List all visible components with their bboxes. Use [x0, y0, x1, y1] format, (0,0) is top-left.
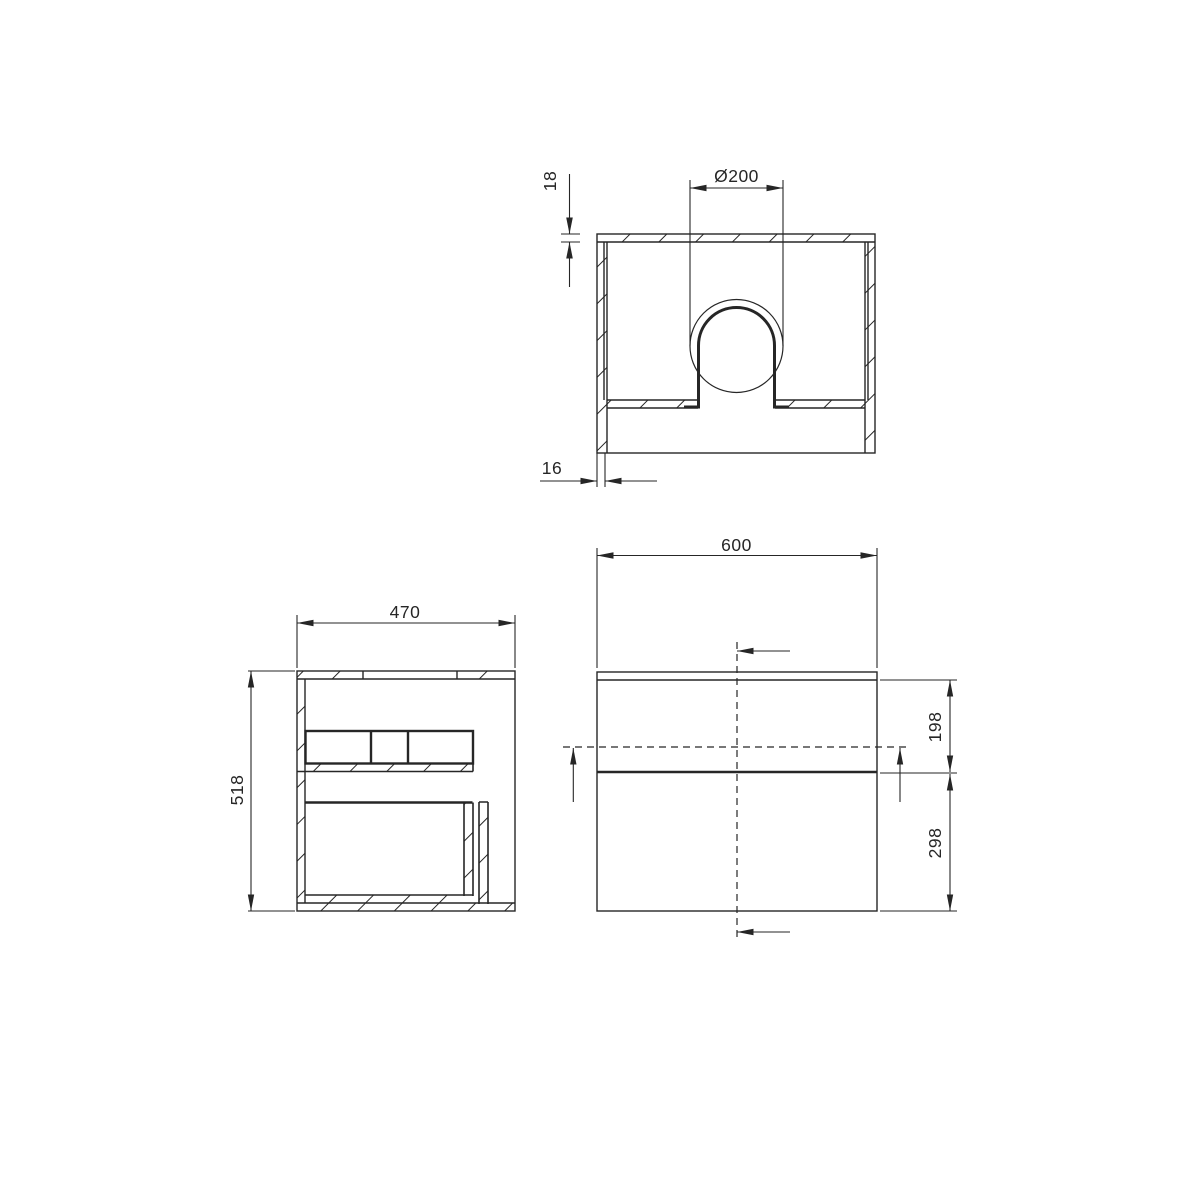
cabinet-technical-drawing-page: 18 Ø200 16 [0, 0, 1200, 1200]
top-view-left-wall-hatch [597, 242, 607, 453]
dim-518-extension-lines [248, 671, 295, 911]
dim-600-extension-lines [597, 548, 877, 668]
dim-upper-front-height: 198 [880, 680, 957, 773]
side-upper-drawer-box [306, 731, 474, 764]
dim-18-extension-lines [561, 234, 580, 242]
side-top-joints [363, 671, 457, 679]
arrowhead-right-icon [767, 185, 784, 191]
arrowhead-right-icon [581, 478, 598, 484]
arrowhead-up-icon [566, 242, 573, 259]
dim-lower-front-height-label: 298 [925, 828, 945, 859]
arrowhead-up-icon [947, 680, 953, 697]
arrowhead-right-icon [499, 620, 516, 626]
dim-16-extension-lines [597, 453, 605, 487]
arrowhead-left-icon [605, 478, 622, 484]
dim-width-label: 600 [721, 535, 752, 555]
side-shelf-hatch [305, 764, 473, 772]
arrowhead-up-icon [570, 748, 576, 765]
arrowhead-right-icon [861, 552, 878, 558]
side-view: 470 518 [227, 602, 515, 911]
front-view: 600 198 298 [563, 535, 957, 938]
dim-o200-extension-lines [690, 180, 783, 346]
side-drawer-bottom-hatch [305, 895, 473, 903]
side-drawer-back-hatch [464, 803, 473, 896]
arrowhead-left-icon [690, 185, 707, 191]
arrowhead-down-icon [947, 756, 953, 773]
dim-body-height-label: 518 [227, 775, 247, 806]
side-upper-front-hatch [297, 679, 305, 764]
arrowhead-up-icon [248, 671, 254, 688]
arrowhead-down-icon [248, 895, 254, 912]
dim-hole-diameter-label: Ø200 [714, 166, 759, 186]
arrowhead-left-icon [737, 929, 754, 935]
arrowhead-up-icon [897, 748, 903, 765]
side-top-left-hatch [297, 671, 363, 679]
dim-countertop-thickness-label: 18 [540, 171, 560, 191]
dim-panel-thickness-label: 16 [542, 458, 562, 478]
top-view-back-rail-hatch [597, 234, 875, 242]
arrowhead-left-icon [297, 620, 314, 626]
dim-lower-front-height: 298 [880, 774, 957, 911]
top-view-outline [597, 234, 875, 453]
top-view: 18 Ø200 16 [540, 166, 875, 487]
top-view-right-wall-hatch [865, 242, 875, 453]
dim-depth-label: 470 [390, 602, 421, 622]
dim-hole-diameter: Ø200 [690, 166, 783, 346]
dim-depth: 470 [297, 602, 515, 668]
dim-panel-thickness: 16 [540, 453, 657, 487]
side-cabinet-bottom-hatch [297, 903, 515, 911]
arrowhead-left-icon [597, 552, 614, 558]
arrowhead-left-icon [737, 648, 754, 654]
cabinet-technical-drawing: 18 Ø200 16 [0, 0, 1200, 1200]
arrowhead-down-icon [947, 895, 953, 912]
dim-upper-front-height-label: 198 [925, 712, 945, 743]
side-top-right-hatch [457, 671, 515, 679]
side-upper-drawer-dividers [371, 731, 408, 764]
dim-countertop-thickness: 18 [540, 171, 580, 287]
arrowhead-up-icon [947, 774, 953, 791]
drain-hole-circle [690, 300, 783, 393]
dim-body-height: 518 [227, 671, 295, 911]
dim-198-extension-lines [880, 680, 957, 773]
side-lower-front-hatch [297, 772, 305, 904]
side-spacer-hatch [479, 802, 488, 904]
arrowhead-down-icon [566, 218, 573, 235]
